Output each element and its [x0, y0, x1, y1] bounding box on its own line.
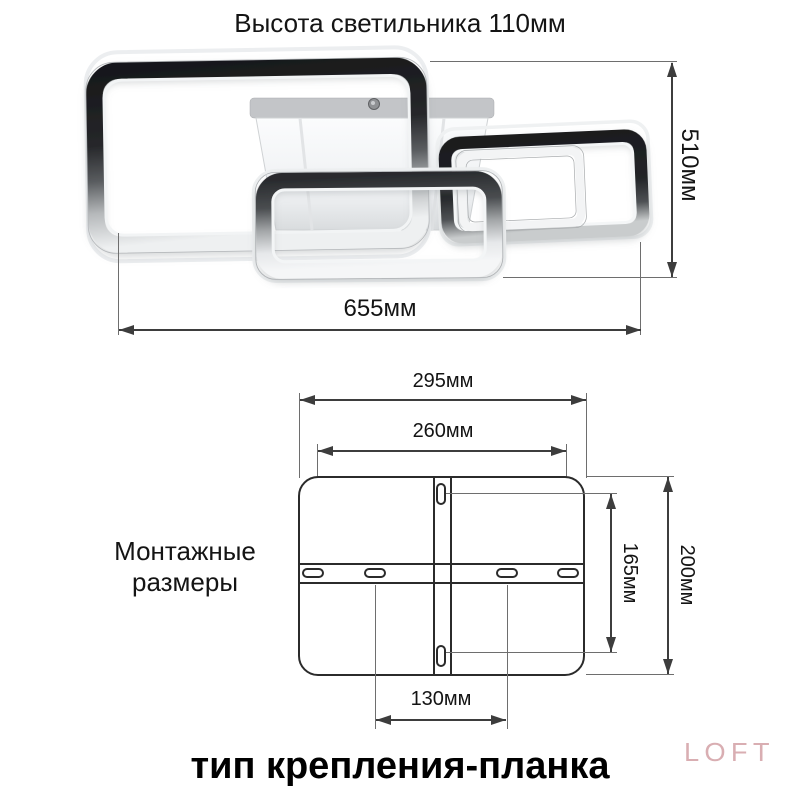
product-dimension-diagram: Высота светильника 110мм: [0, 0, 800, 800]
arrow-up-icon: [663, 477, 673, 492]
extension-line: [503, 277, 677, 278]
extension-line: [586, 476, 674, 477]
arrow-right-icon: [551, 446, 566, 456]
ceiling-lamp-photo: [50, 40, 670, 290]
loft-watermark: LOFT: [684, 737, 775, 768]
mounting-dimensions-label-line2: размеры: [85, 567, 285, 598]
arrow-left-icon: [376, 715, 391, 725]
extension-line: [118, 233, 119, 335]
mounting-bar-line: [300, 563, 583, 565]
slot-bar-inner-right: [496, 568, 518, 578]
arrow-up-icon: [667, 62, 677, 77]
dim-165-line: [610, 494, 612, 652]
plate-channel-line: [450, 478, 452, 674]
extension-line: [586, 393, 587, 478]
arrow-down-icon: [606, 637, 616, 652]
slot-top: [436, 483, 446, 505]
extension-line: [586, 674, 674, 675]
mounting-dimensions-label: Монтажные размеры: [85, 536, 285, 598]
arrow-left-icon: [318, 446, 333, 456]
slot-bar-inner-left: [364, 568, 386, 578]
dim-200-line: [667, 477, 669, 674]
dim-655-line: [119, 329, 641, 331]
dim-510-label: 510мм: [675, 105, 703, 225]
plate-channel-line: [433, 478, 435, 674]
extension-line: [640, 242, 641, 335]
arrow-right-icon: [626, 325, 641, 335]
dim-130-label: 130мм: [361, 688, 521, 711]
arrow-up-icon: [606, 494, 616, 509]
extension-line: [446, 652, 617, 653]
dim-510-line: [671, 63, 673, 277]
fixture-height-title: Высота светильника 110мм: [0, 8, 800, 39]
dim-165-label: 165мм: [616, 513, 644, 633]
dim-130-line: [376, 719, 506, 721]
mounting-bar-line: [300, 582, 583, 584]
dim-200-label: 200мм: [673, 515, 701, 635]
mounting-dimensions-label-line1: Монтажные: [85, 536, 285, 567]
extension-line: [299, 393, 300, 478]
dim-260-label: 260мм: [363, 420, 523, 443]
extension-line: [430, 61, 677, 62]
slot-bottom: [436, 645, 446, 667]
extension-line: [446, 493, 617, 494]
dim-260-line: [318, 450, 566, 452]
screw-icon: [369, 99, 380, 110]
arrow-down-icon: [667, 262, 677, 277]
dim-295-label: 295мм: [363, 370, 523, 393]
slot-bar-outer-right: [557, 568, 579, 578]
arrow-down-icon: [663, 659, 673, 674]
arrow-right-icon: [571, 395, 586, 405]
arrow-left-icon: [300, 395, 315, 405]
dim-655-label: 655мм: [300, 295, 460, 323]
slot-bar-outer-left: [302, 568, 324, 578]
arrow-right-icon: [491, 715, 506, 725]
arrow-left-icon: [119, 325, 134, 335]
mount-type-title: тип крепления-планка: [0, 745, 800, 788]
dim-295-line: [300, 399, 586, 401]
